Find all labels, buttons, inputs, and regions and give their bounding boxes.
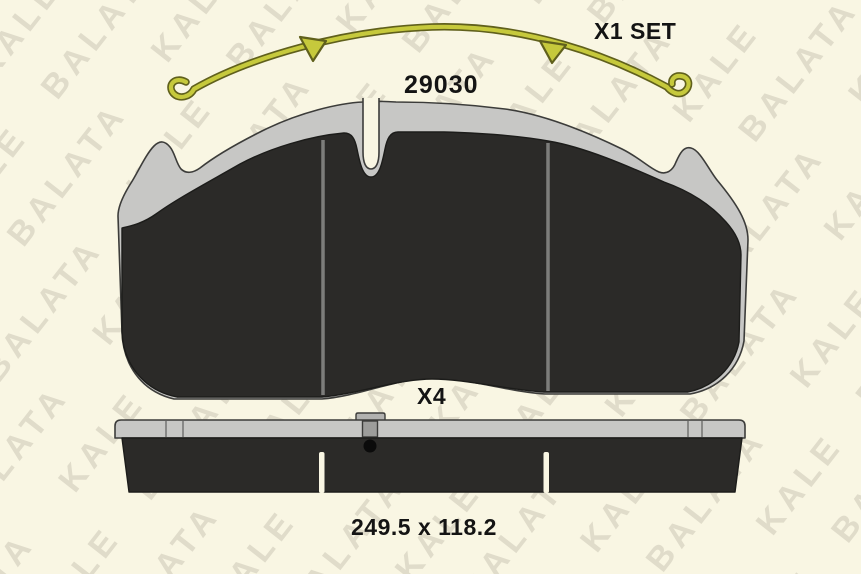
- guide-pin: [363, 421, 378, 437]
- brake-pad-front-view: [118, 98, 748, 399]
- pad-quantity-label: X4: [417, 383, 446, 410]
- dimensions-label: 249.5 x 118.2: [351, 514, 497, 541]
- friction-material-side: [122, 438, 742, 492]
- set-quantity-label: X1 SET: [594, 18, 676, 45]
- backing-plate-edge: [115, 420, 745, 438]
- brake-pad-product-image: KALE BALATA KALE BALATA KALE BALATA KALE…: [0, 0, 861, 574]
- wear-slot-left: [319, 452, 325, 493]
- backing-plate-center-notch: [363, 98, 379, 169]
- rivet-dot: [364, 440, 377, 453]
- brake-pad-side-view: [115, 413, 745, 493]
- wear-slot-right: [544, 452, 550, 493]
- part-number-label: 29030: [404, 71, 479, 100]
- spring-clip-tab-right: [540, 41, 566, 63]
